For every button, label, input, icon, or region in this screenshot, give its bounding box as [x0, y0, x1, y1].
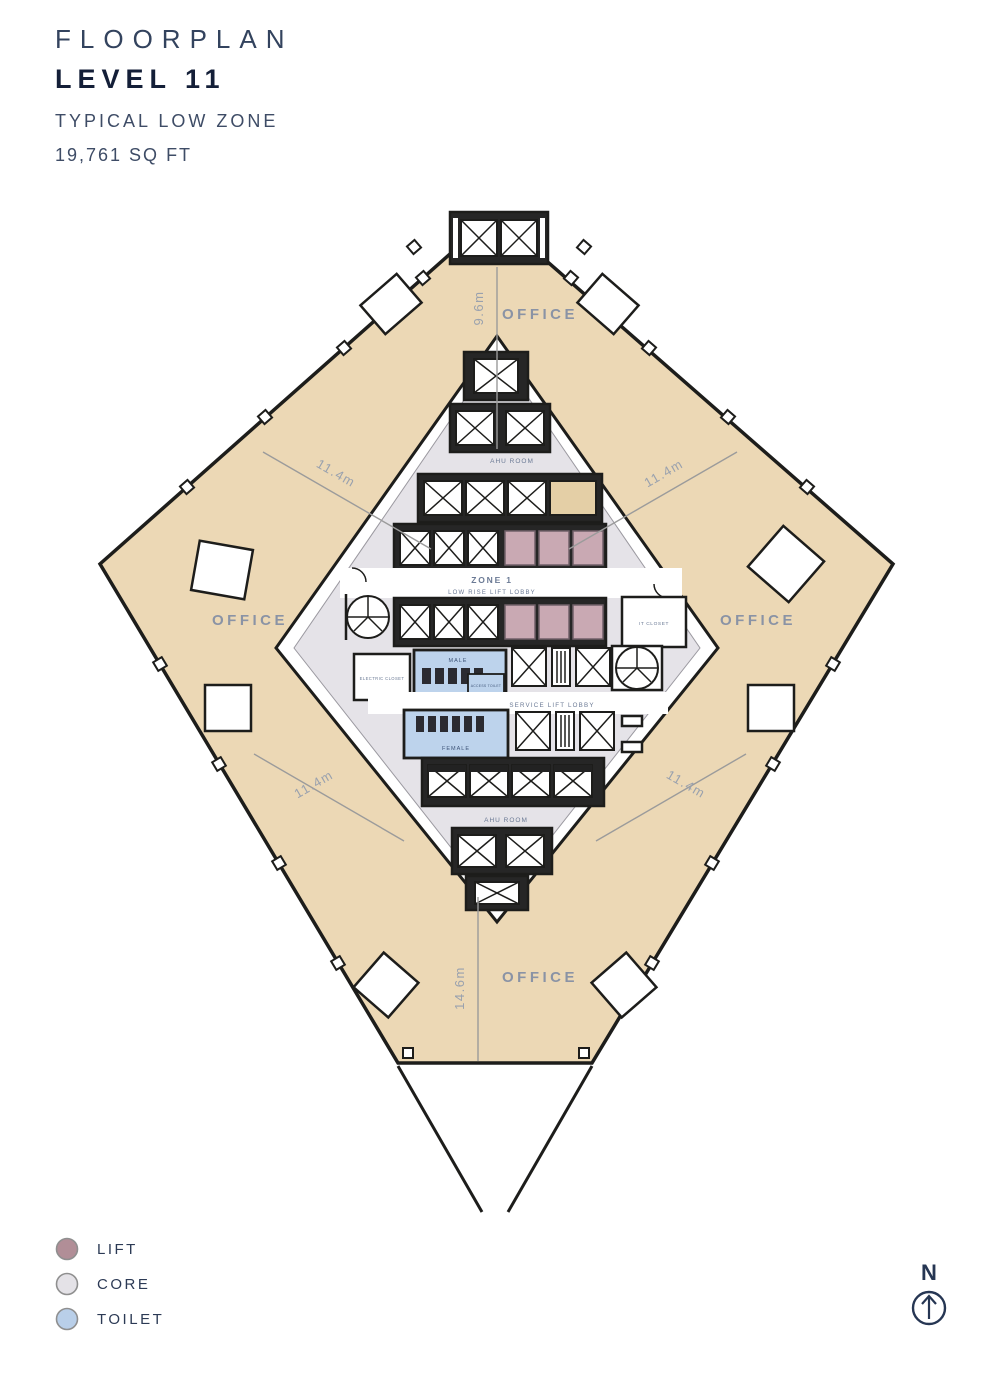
- stair-west: [347, 596, 389, 638]
- service-lobby-label: SERVICE LIFT LOBBY: [509, 702, 594, 709]
- core-lift-row-2-upper: [450, 404, 550, 452]
- compass-n-label: N: [921, 1260, 937, 1285]
- toilet-swatch-icon: [55, 1307, 79, 1331]
- core-lift-top: [464, 352, 528, 400]
- prow-outline: [398, 1066, 592, 1212]
- core-shaft-row-upper: [418, 474, 602, 522]
- legend-item-lift: LIFT: [55, 1237, 164, 1261]
- dim-top: 9.6m: [471, 291, 486, 326]
- female-toilet-label: FEMALE: [442, 746, 470, 752]
- legend-label-toilet: TOILET: [97, 1311, 164, 1328]
- office-label-west: OFFICE: [212, 612, 288, 629]
- legend-label-lift: LIFT: [97, 1241, 138, 1258]
- office-label-south: OFFICE: [502, 969, 578, 986]
- core-swatch-icon: [55, 1272, 79, 1296]
- core-lift-bottom: [466, 876, 528, 910]
- lift-bank-top: [450, 212, 548, 264]
- dim-bottom: 14.6m: [452, 966, 467, 1010]
- ahu-room-upper-label: AHU ROOM: [490, 458, 534, 465]
- north-arrow-icon: N: [913, 1260, 945, 1324]
- electric-closet-label: ELECTRIC CLOSET: [360, 676, 405, 681]
- female-toilet: FEMALE: [404, 710, 508, 758]
- office-label-north: OFFICE: [502, 306, 578, 323]
- legend: LIFT CORE TOILET: [55, 1237, 164, 1342]
- lift-bank-row-a: [394, 524, 606, 572]
- lift-bank-row-b: [394, 598, 606, 646]
- service-lifts-upper: [512, 646, 662, 690]
- legend-item-toilet: TOILET: [55, 1307, 164, 1331]
- floorplan-canvas: AHU ROOM ZONE 1 LOW RISE LIFT LOBBY: [0, 0, 1000, 1384]
- access-toilet-label: ACCESS TOILET: [471, 684, 502, 688]
- core-lift-row-2-lower: [452, 828, 552, 874]
- office-label-east: OFFICE: [720, 612, 796, 629]
- floorplan-page: FLOORPLAN LEVEL 11 TYPICAL LOW ZONE 19,7…: [0, 0, 1000, 1384]
- it-closet: IT CLOSET: [622, 597, 686, 647]
- zone1-subtitle: LOW RISE LIFT LOBBY: [448, 590, 536, 596]
- male-toilet-label: MALE: [449, 658, 468, 664]
- core-shaft-row-lower: [422, 758, 604, 806]
- it-closet-label: IT CLOSET: [639, 621, 669, 627]
- ahu-room-lower-label: AHU ROOM: [484, 817, 528, 824]
- lift-swatch-icon: [55, 1237, 79, 1261]
- zone1-title: ZONE 1: [471, 575, 513, 585]
- legend-item-core: CORE: [55, 1272, 164, 1296]
- legend-label-core: CORE: [97, 1276, 150, 1293]
